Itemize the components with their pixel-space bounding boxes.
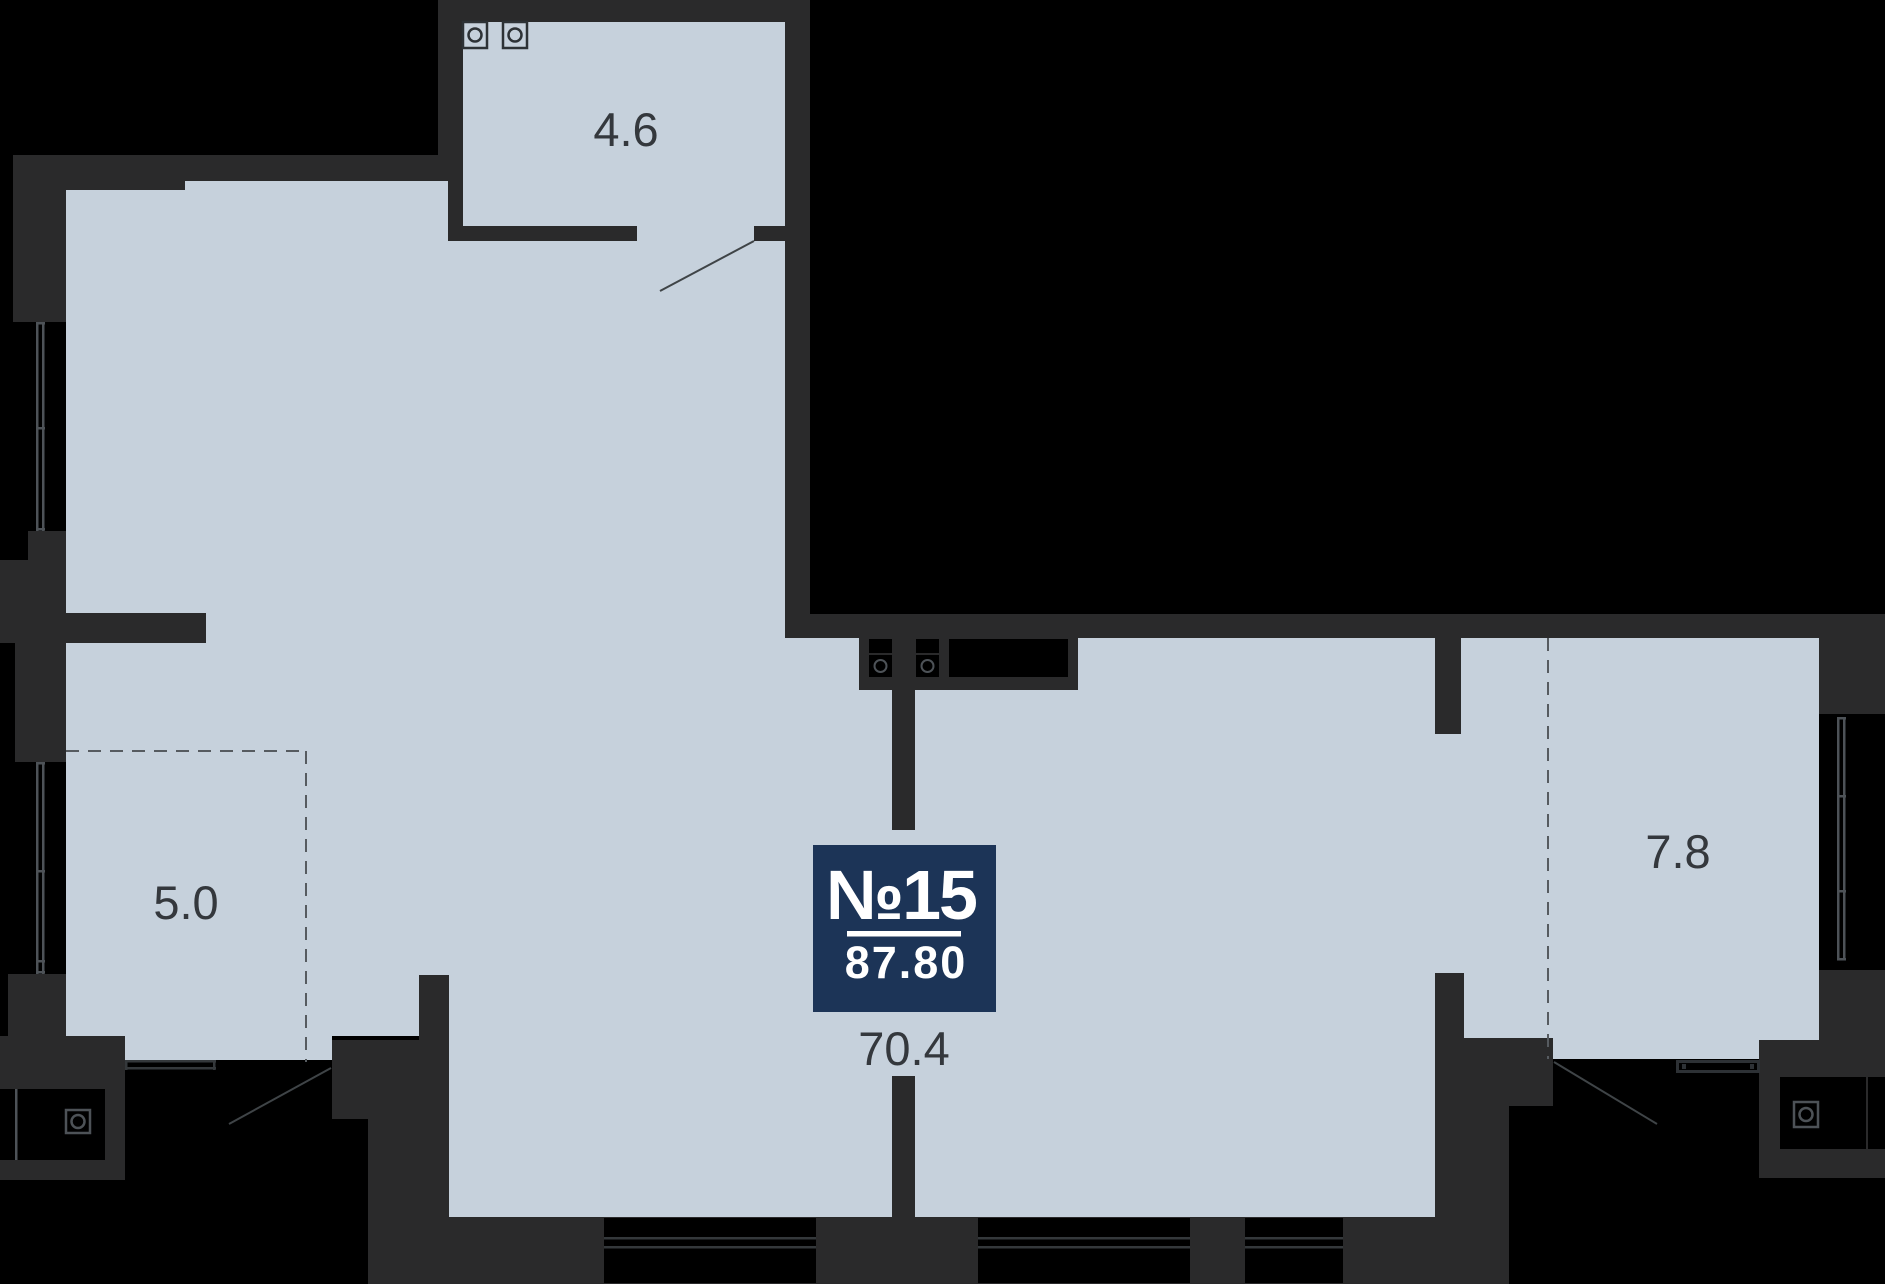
svg-text:7.8: 7.8 [1645, 825, 1710, 878]
svg-text:70.4: 70.4 [858, 1022, 949, 1075]
svg-text:5.0: 5.0 [153, 876, 218, 929]
svg-text:№15: №15 [826, 856, 976, 934]
svg-text:87.80: 87.80 [845, 937, 968, 988]
svg-text:4.6: 4.6 [593, 103, 658, 156]
